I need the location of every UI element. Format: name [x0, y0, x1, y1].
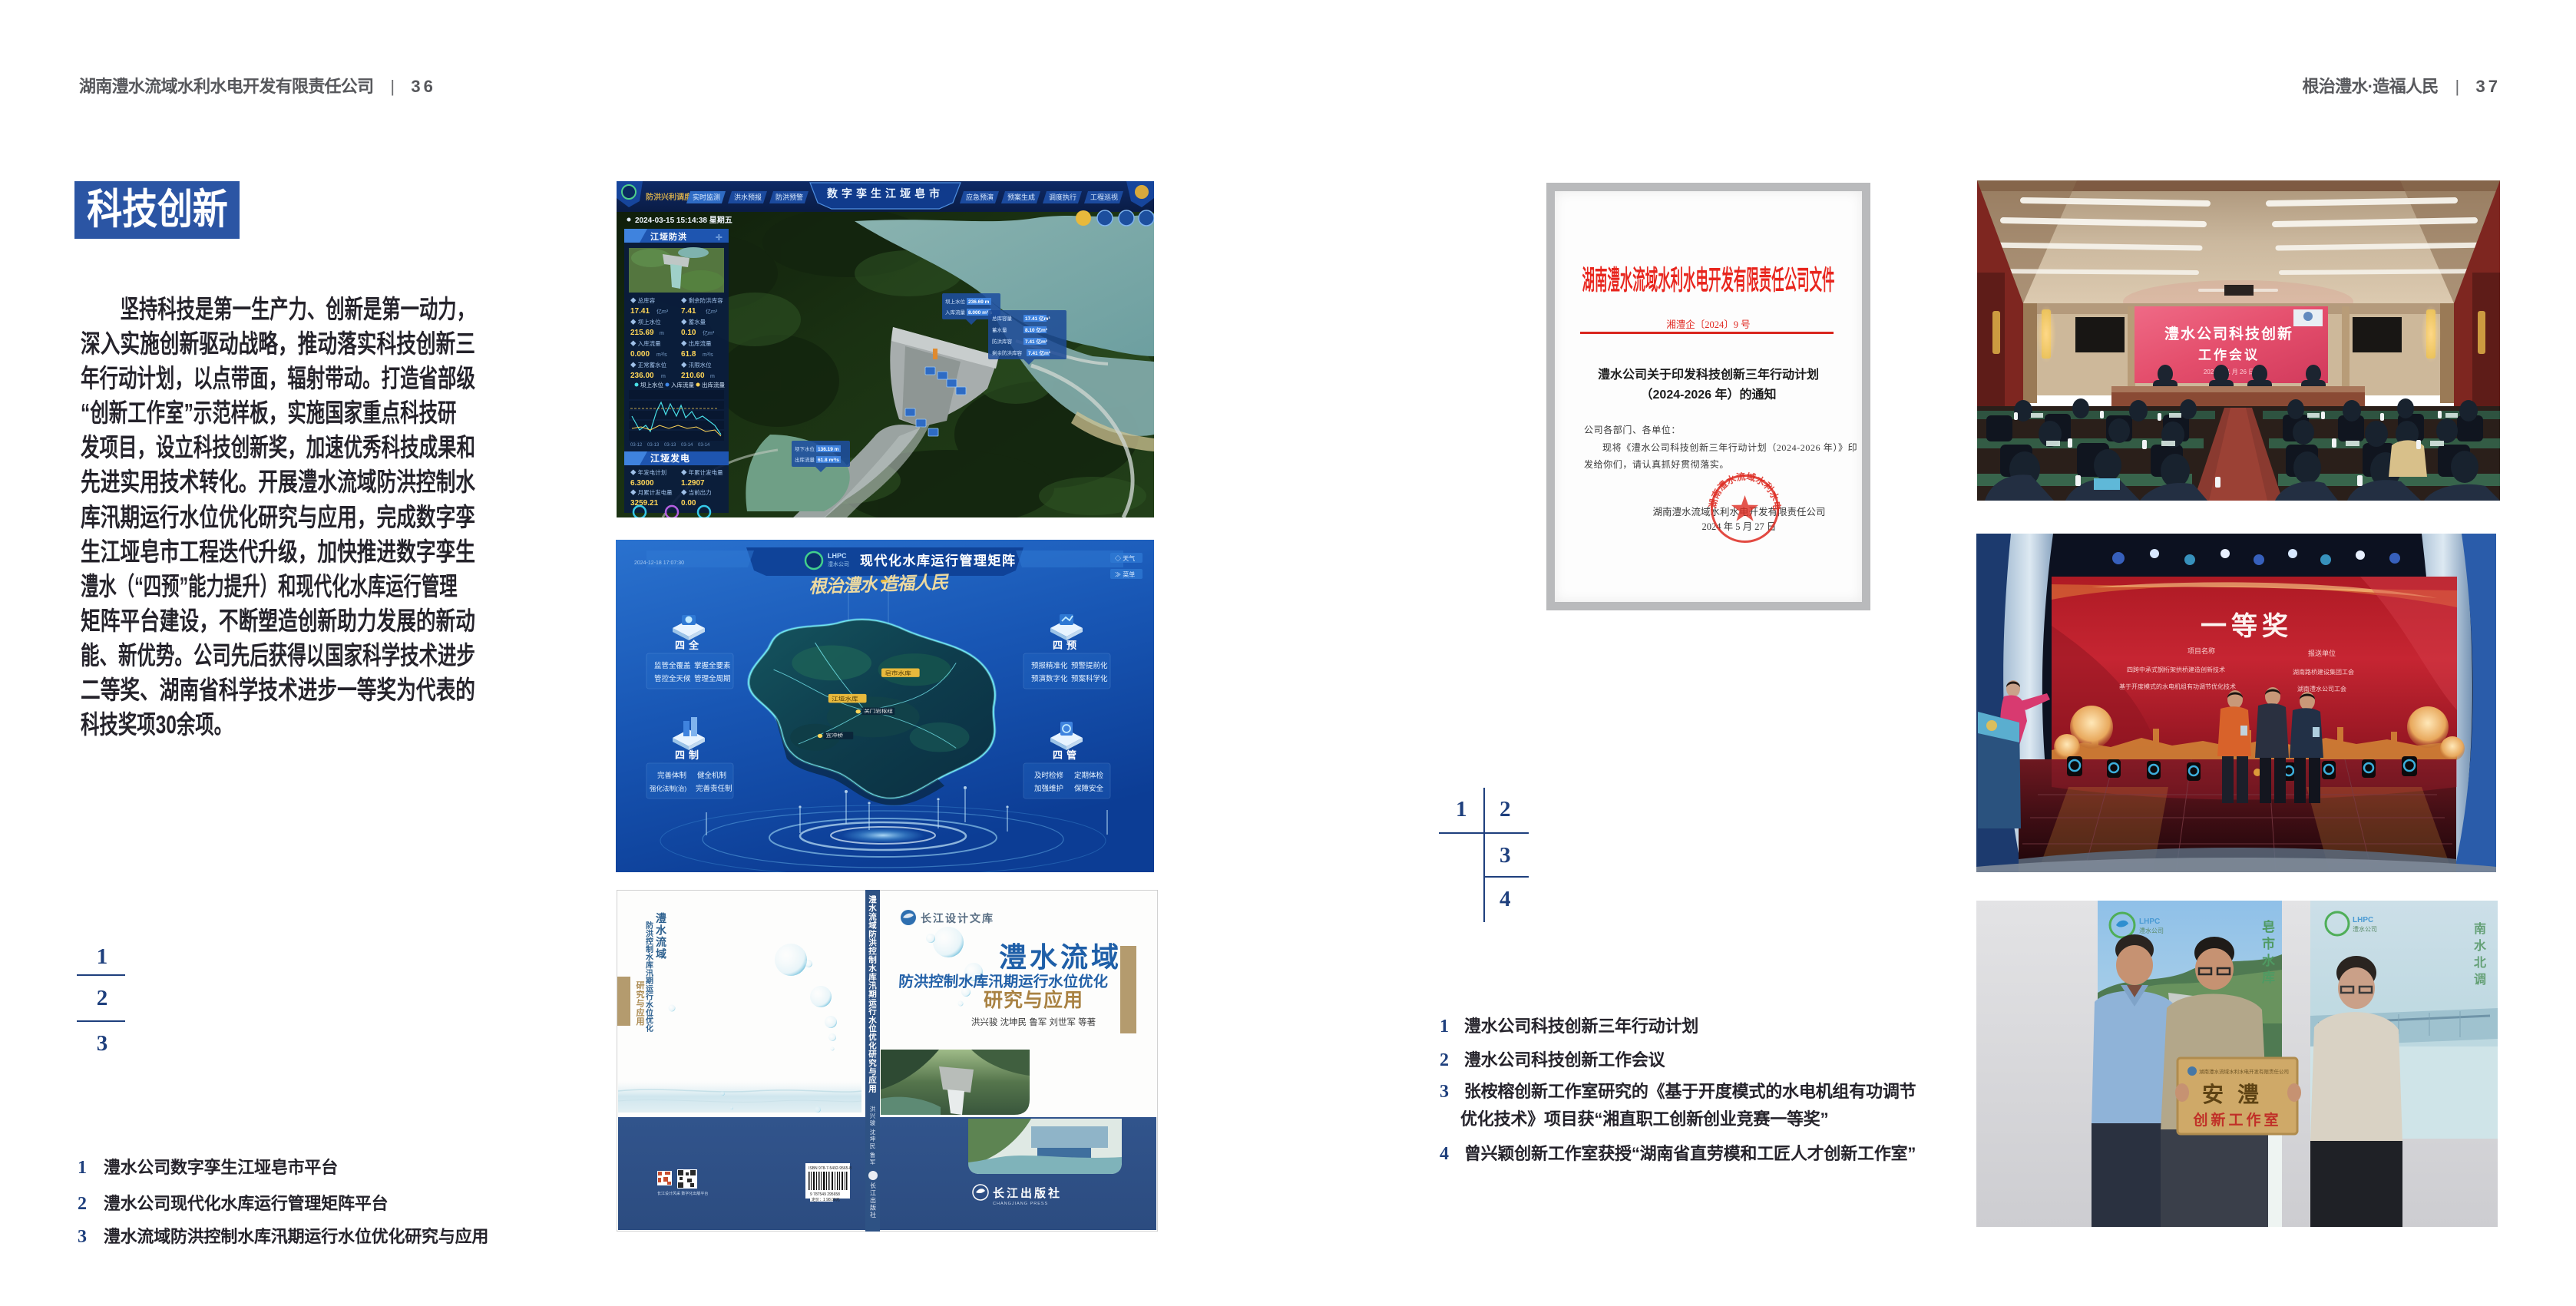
svg-text:与: 与: [637, 999, 645, 1009]
svg-text:湖南澧水流域水利水电开发有限责任公司: 湖南澧水流域水利水电开发有限责任公司: [2199, 1068, 2289, 1075]
svg-text:出: 出: [870, 1196, 876, 1204]
svg-text:应: 应: [637, 1007, 645, 1017]
svg-text:2024 年 1 月 26 日: 2024 年 1 月 26 日: [2204, 368, 2254, 375]
svg-text:◆ 剩余防洪库容: ◆ 剩余防洪库容: [681, 296, 723, 304]
svg-text:03-13: 03-13: [647, 443, 660, 448]
svg-text:监管全覆盖: 监管全覆盖: [654, 661, 691, 670]
svg-text:长: 长: [870, 1182, 876, 1189]
svg-text:控: 控: [646, 937, 653, 947]
svg-text:长江出版社: 长江出版社: [993, 1186, 1062, 1200]
svg-text:创新工作室: 创新工作室: [2192, 1111, 2281, 1129]
svg-text:用: 用: [868, 1084, 877, 1093]
svg-text:防洪兴利调度: 防洪兴利调度: [646, 192, 693, 202]
svg-text:8.10 亿m³: 8.10 亿m³: [1025, 326, 1048, 333]
svg-text:军: 军: [870, 1159, 876, 1165]
svg-text:版: 版: [870, 1204, 876, 1212]
svg-text:亿m³: 亿m³: [703, 329, 715, 336]
svg-text:位: 位: [646, 1007, 653, 1017]
svg-text:水: 水: [645, 952, 654, 962]
svg-text:究: 究: [868, 1058, 877, 1068]
svg-text:0.00: 0.00: [681, 499, 696, 508]
svg-text:制: 制: [868, 954, 877, 964]
svg-text:行: 行: [868, 1007, 877, 1017]
svg-text:总库容量: 总库容量: [992, 315, 1013, 322]
svg-text:定期体检: 定期体检: [1074, 771, 1104, 780]
svg-text:◆ 入库流量: ◆ 入库流量: [630, 339, 661, 347]
svg-text:化: 化: [646, 1023, 653, 1033]
svg-text:防: 防: [646, 921, 653, 931]
svg-text:实时监测: 实时监测: [693, 193, 720, 201]
svg-text:行: 行: [645, 992, 653, 1002]
svg-text:流: 流: [868, 911, 877, 921]
svg-text:✛: ✛: [716, 233, 723, 243]
svg-text:澧水公司: 澧水公司: [2139, 927, 2164, 934]
svg-text:运: 运: [868, 998, 877, 1007]
svg-text:防: 防: [868, 929, 877, 939]
svg-text:运: 运: [646, 984, 653, 994]
svg-text:03-13: 03-13: [664, 443, 676, 448]
svg-text:洪兴骏 沈坤民 鲁军 刘世军 等著: 洪兴骏 沈坤民 鲁军 刘世军 等著: [971, 1017, 1096, 1027]
svg-text:◆ 坝上水位: ◆ 坝上水位: [630, 318, 661, 326]
svg-text:m³/s: m³/s: [656, 352, 667, 358]
svg-text:预案生成: 预案生成: [1007, 193, 1035, 201]
svg-text:水: 水: [868, 1015, 877, 1025]
svg-text:管理全周期: 管理全周期: [694, 674, 731, 683]
svg-text:0.10: 0.10: [681, 329, 696, 337]
svg-text:四管: 四管: [1053, 749, 1080, 761]
svg-text:一等奖: 一等奖: [2201, 612, 2293, 641]
svg-text:流: 流: [656, 936, 666, 948]
svg-text:水: 水: [868, 903, 877, 913]
svg-text:61.8: 61.8: [681, 350, 696, 359]
svg-text:61.8 m³/s: 61.8 m³/s: [818, 458, 839, 463]
svg-text:调: 调: [2474, 973, 2486, 987]
svg-text:江垭发电: 江垭发电: [650, 452, 690, 464]
svg-text:亿m³: 亿m³: [706, 308, 718, 315]
svg-text:坤: 坤: [870, 1135, 876, 1142]
svg-text:澧水公司: 澧水公司: [2353, 925, 2377, 933]
svg-text:报送单位: 报送单位: [2308, 649, 2336, 657]
svg-text:入库流量: 入库流量: [945, 309, 966, 316]
svg-text:7.41: 7.41: [681, 307, 696, 316]
svg-text:◆ 当前出力: ◆ 当前出力: [681, 488, 712, 496]
svg-text:蓄水量: 蓄水量: [992, 326, 1007, 333]
svg-text:工程巡视: 工程巡视: [1090, 193, 1118, 201]
svg-text:鲁: 鲁: [870, 1151, 876, 1159]
svg-text:03-14: 03-14: [698, 443, 710, 448]
svg-text:防洪预警: 防洪预警: [775, 193, 803, 201]
svg-text:剩余防洪库容: 剩余防洪库容: [992, 349, 1023, 356]
svg-text:洪: 洪: [870, 1105, 876, 1113]
svg-text:◆ 汛限水位: ◆ 汛限水位: [681, 361, 712, 369]
svg-text:水: 水: [2474, 938, 2487, 953]
svg-text:制: 制: [646, 944, 653, 954]
svg-text:江垭防洪: 江垭防洪: [650, 231, 687, 242]
svg-text:防洪库容: 防洪库容: [992, 338, 1013, 345]
svg-text:水: 水: [656, 924, 667, 937]
svg-text:汛: 汛: [646, 968, 653, 978]
svg-text:应急预演: 应急预演: [966, 193, 994, 201]
svg-text:LHPC: LHPC: [2139, 918, 2160, 926]
svg-text:6.3000: 6.3000: [630, 479, 654, 488]
svg-text:沈: 沈: [870, 1128, 876, 1136]
svg-text:m: m: [661, 374, 666, 379]
svg-text:7.41 亿m³: 7.41 亿m³: [1028, 349, 1051, 356]
svg-text:◆ 出库流量: ◆ 出库流量: [681, 339, 712, 347]
svg-text:调度执行: 调度执行: [1049, 193, 1076, 201]
svg-text:澧: 澧: [656, 912, 666, 924]
svg-text:◆ 年发电计划: ◆ 年发电计划: [630, 468, 666, 476]
svg-text:◆ 月累计发电量: ◆ 月累计发电量: [630, 488, 673, 496]
svg-text:澧水公司科技创新: 澧水公司科技创新: [2164, 325, 2293, 342]
svg-text:210.60: 210.60: [681, 372, 705, 380]
svg-text:加强维护: 加强维护: [1034, 784, 1063, 793]
svg-text:长江设计文库: 长江设计文库: [921, 912, 994, 924]
svg-text:预案科学化: 预案科学化: [1071, 674, 1108, 683]
svg-text:掌握全要素: 掌握全要素: [694, 661, 731, 670]
svg-text:水: 水: [868, 964, 877, 974]
svg-text:预警提前化: 预警提前化: [1071, 661, 1108, 670]
svg-text:库: 库: [646, 960, 653, 970]
svg-text:215.69: 215.69: [630, 329, 654, 337]
svg-text:管控全天候: 管控全天候: [654, 674, 691, 683]
svg-text:坝上水位: 坝上水位: [640, 381, 663, 388]
svg-text:坝上水位: 坝上水位: [945, 298, 966, 305]
svg-text:LHPC: LHPC: [2353, 916, 2373, 924]
svg-text:防洪控制水库汛期运行水位优化: 防洪控制水库汛期运行水位优化: [898, 973, 1109, 990]
svg-text:汛: 汛: [868, 980, 877, 990]
svg-text:南: 南: [2474, 921, 2486, 936]
svg-text:研究与应用: 研究与应用: [984, 989, 1083, 1011]
svg-text:m³/s: m³/s: [703, 352, 713, 358]
svg-text:澧水公司: 澧水公司: [828, 560, 849, 567]
svg-text:水: 水: [645, 1000, 654, 1010]
svg-text:澧水流域: 澧水流域: [999, 941, 1122, 973]
svg-text:湖南路桥建设集团工会: 湖南路桥建设集团工会: [2293, 668, 2354, 676]
svg-text:洪: 洪: [868, 937, 877, 947]
svg-text:03-14: 03-14: [681, 443, 693, 448]
svg-text:市: 市: [2262, 936, 2275, 951]
svg-text:预报精准化: 预报精准化: [1031, 661, 1068, 670]
svg-text:兴: 兴: [870, 1113, 876, 1119]
svg-text:域: 域: [868, 921, 877, 931]
svg-text:究: 究: [637, 989, 645, 1000]
svg-text:四制: 四制: [675, 749, 703, 761]
svg-text:◆ 总库容: ◆ 总库容: [630, 296, 656, 304]
svg-text:m: m: [660, 331, 664, 336]
svg-text:库: 库: [2262, 970, 2275, 985]
svg-text:2024-12-18 17:07:30: 2024-12-18 17:07:30: [634, 560, 684, 566]
svg-text:ISBN 978-7-5492-9565-8: ISBN 978-7-5492-9565-8: [809, 1166, 852, 1171]
svg-text:数字孪生江垭皂市: 数字孪生江垭皂市: [827, 187, 944, 200]
svg-text:研: 研: [637, 980, 645, 990]
svg-text:关门岩枢纽: 关门岩枢纽: [864, 708, 893, 714]
svg-text:洪: 洪: [646, 928, 653, 938]
svg-text:四全: 四全: [675, 640, 703, 651]
svg-text:入库流量: 入库流量: [671, 381, 694, 388]
svg-text:出库流量: 出库流量: [702, 381, 725, 388]
svg-text:位: 位: [868, 1023, 877, 1033]
svg-text:用: 用: [637, 1017, 645, 1027]
svg-text:控: 控: [868, 946, 877, 956]
svg-text:长江设计风采 数字化出版平台: 长江设计风采 数字化出版平台: [657, 1191, 708, 1196]
svg-text:化: 化: [868, 1040, 877, 1050]
svg-text:CHANGJIANG PRESS: CHANGJIANG PRESS: [993, 1202, 1048, 1206]
svg-text:m: m: [710, 374, 715, 379]
svg-text:江垭水库: 江垭水库: [832, 696, 858, 703]
svg-text:7.41 亿m³: 7.41 亿m³: [1025, 338, 1048, 345]
svg-text:定价：1 98.00元: 定价：1 98.00元: [812, 1197, 840, 1202]
svg-text:期: 期: [868, 989, 877, 999]
svg-text:库: 库: [868, 972, 877, 982]
svg-text:项目名称: 项目名称: [2187, 646, 2215, 655]
svg-text:亿m³: 亿m³: [656, 308, 669, 315]
svg-text:优: 优: [646, 1016, 653, 1026]
svg-text:◇ 天气: ◇ 天气: [1115, 554, 1135, 562]
svg-text:◆ 年累计发电量: ◆ 年累计发电量: [681, 468, 723, 476]
svg-text:研: 研: [868, 1050, 877, 1060]
svg-text:出库流量: 出库流量: [795, 456, 815, 463]
svg-text:健全机制: 健全机制: [697, 771, 726, 780]
svg-text:17.41 亿m³: 17.41 亿m³: [1025, 315, 1050, 322]
svg-text:与: 与: [868, 1066, 877, 1076]
svg-text:骏: 骏: [870, 1119, 876, 1126]
svg-text:236.00: 236.00: [630, 372, 654, 380]
svg-text:保障安全: 保障安全: [1074, 784, 1104, 793]
svg-text:03-12: 03-12: [630, 443, 643, 448]
svg-text:≫ 菜单: ≫ 菜单: [1115, 570, 1135, 578]
svg-text:236.69 m: 236.69 m: [968, 299, 990, 305]
svg-text:民: 民: [870, 1142, 876, 1149]
svg-text:优: 优: [868, 1032, 877, 1042]
svg-text:及时检修: 及时检修: [1034, 771, 1064, 780]
svg-text:坝下水位: 坝下水位: [795, 445, 815, 452]
svg-text:应: 应: [868, 1075, 877, 1085]
svg-text:皂: 皂: [2262, 919, 2275, 934]
svg-text:17.41: 17.41: [630, 307, 650, 316]
svg-text:完善体制: 完善体制: [657, 771, 686, 780]
svg-text:社: 社: [870, 1211, 876, 1218]
svg-text:安澧: 安澧: [2202, 1083, 2273, 1107]
svg-text:0.000: 0.000: [630, 350, 650, 359]
svg-text:皂市水库: 皂市水库: [885, 670, 911, 676]
svg-text:现代化水库运行管理矩阵: 现代化水库运行管理矩阵: [860, 553, 1017, 568]
svg-text:域: 域: [656, 948, 666, 960]
svg-text:北: 北: [2474, 956, 2486, 970]
svg-text:完善责任制: 完善责任制: [696, 784, 732, 793]
svg-text:预演数字化: 预演数字化: [1031, 674, 1068, 683]
svg-text:3259.21: 3259.21: [630, 499, 659, 508]
svg-text:基于开度模式的水电机组有功调节优化技术: 基于开度模式的水电机组有功调节优化技术: [2119, 683, 2236, 690]
svg-text:四预: 四预: [1053, 640, 1080, 651]
svg-text:1.2907: 1.2907: [681, 479, 705, 488]
svg-text:2024-03-15 15:14:38 星期五: 2024-03-15 15:14:38 星期五: [635, 215, 732, 225]
svg-text:◆ 蓄水量: ◆ 蓄水量: [681, 318, 706, 326]
svg-text:澧: 澧: [868, 894, 877, 904]
svg-text:江: 江: [870, 1190, 876, 1197]
svg-text:湖南澧水公司工会: 湖南澧水公司工会: [2297, 685, 2346, 693]
svg-text:LHPC: LHPC: [828, 552, 847, 560]
svg-text:◆ 正常蓄水位: ◆ 正常蓄水位: [630, 361, 667, 369]
svg-text:强化法制(治): 强化法制(治): [650, 785, 686, 792]
svg-text:期: 期: [646, 976, 653, 986]
svg-text:宜冲桥: 宜冲桥: [826, 732, 844, 739]
svg-text:136.19 m: 136.19 m: [818, 447, 839, 452]
svg-text:洪水预报: 洪水预报: [734, 193, 762, 201]
svg-text:四跨中承式钢桁架拱桥建造创新技术: 四跨中承式钢桁架拱桥建造创新技术: [2127, 666, 2225, 673]
svg-text:水: 水: [2262, 953, 2276, 968]
svg-text:工作会议: 工作会议: [2198, 347, 2260, 362]
